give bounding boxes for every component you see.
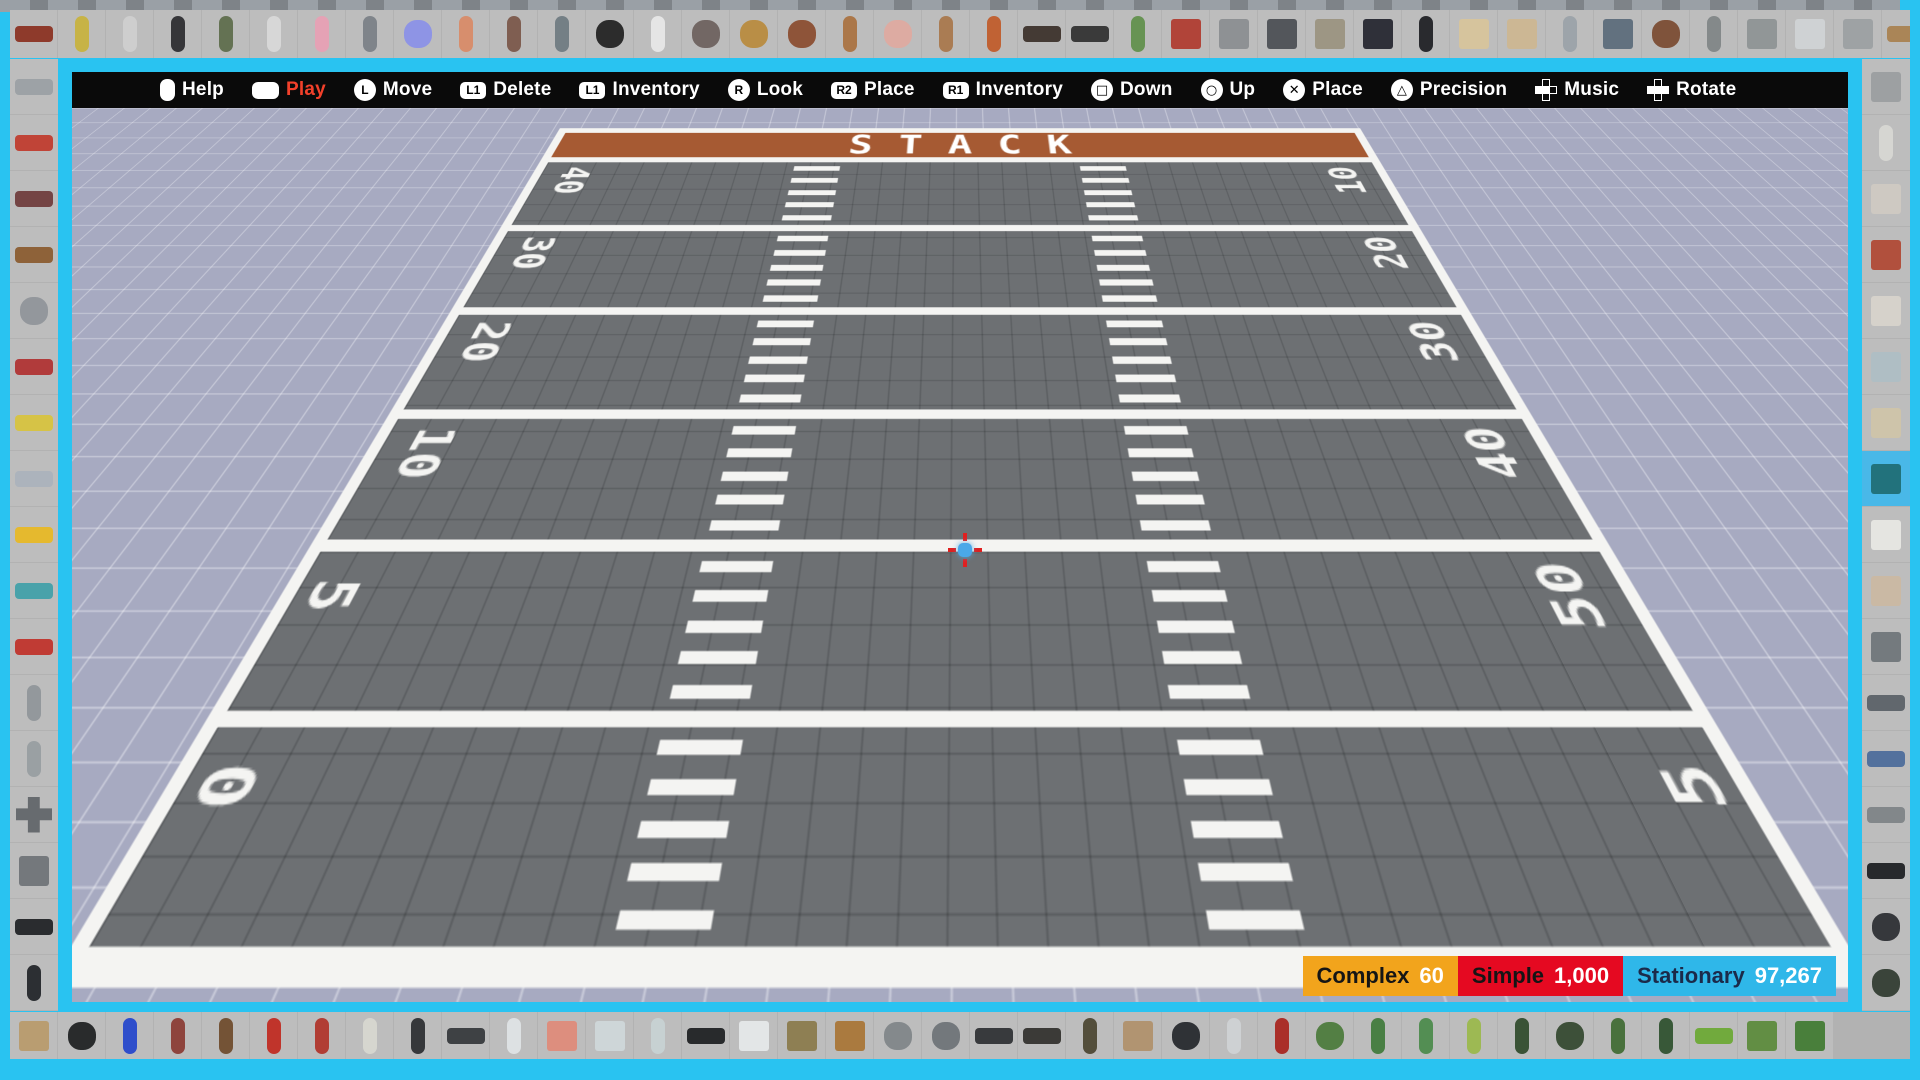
- cactus-thumb-icon: [1371, 1018, 1385, 1054]
- menu-help-0-button[interactable]: Help: [160, 79, 224, 101]
- menu-play-1-button[interactable]: Play: [252, 79, 326, 101]
- palette-item-dark-plank-b[interactable]: [1018, 1012, 1065, 1059]
- menu-music-12-button[interactable]: Music: [1535, 79, 1619, 101]
- field-section: 1040: [328, 419, 1593, 540]
- stationary-badge-value: 97,267: [1755, 963, 1822, 989]
- tan-wedge-thumb-icon: [1459, 19, 1489, 49]
- palette-item-flying-eagle[interactable]: [1018, 10, 1065, 58]
- green-tree-thumb-icon: [1131, 16, 1145, 52]
- palette-item-baby[interactable]: [442, 10, 489, 58]
- palette-item-go-kart[interactable]: [10, 619, 58, 674]
- palm-tree-thumb-icon: [1611, 1018, 1625, 1054]
- hash-dash: [685, 620, 763, 632]
- hash-marks-left: [670, 561, 774, 699]
- crystal-structure-thumb-icon: [1363, 19, 1393, 49]
- palette-item-ketchup-bottle[interactable]: [250, 1012, 297, 1059]
- palette-item-black-dress-woman[interactable]: [154, 10, 201, 58]
- hash-dash: [693, 590, 769, 602]
- rooster-thumb-icon: [987, 16, 1001, 52]
- hash-dash: [715, 495, 784, 505]
- palette-item-plank-stack-cube[interactable]: [1862, 395, 1910, 450]
- mannequin-thumb-icon: [267, 16, 281, 52]
- palette-item-white-dart[interactable]: [346, 1012, 393, 1059]
- dirt-bike-thumb-icon: [15, 359, 53, 375]
- hash-dash: [1119, 394, 1181, 402]
- palette-item-hippo[interactable]: [682, 10, 729, 58]
- hash-marks-right: [1106, 321, 1181, 403]
- palette-item-stone-gate[interactable]: [1738, 10, 1785, 58]
- palette-item-glass-cube[interactable]: [1862, 339, 1910, 394]
- palette-item-wooden-pole[interactable]: [1066, 1012, 1113, 1059]
- hash-dash: [1084, 190, 1132, 195]
- palette-item-black-fin[interactable]: [1162, 1012, 1209, 1059]
- palette-item-green-tree[interactable]: [1114, 10, 1161, 58]
- palette-item-school-bus[interactable]: [10, 507, 58, 562]
- camera-crane-thumb-icon: [447, 1028, 485, 1044]
- menu-rotate-13-button[interactable]: Rotate: [1647, 79, 1736, 101]
- palette-item-curved-wedge[interactable]: [1498, 10, 1545, 58]
- palette-item-palm-tree[interactable]: [1594, 1012, 1641, 1059]
- hash-dash: [1147, 561, 1221, 572]
- soldier-thumb-icon: [219, 16, 233, 52]
- hash-dash: [1112, 356, 1172, 363]
- dark-plank-a-thumb-icon: [975, 1028, 1013, 1044]
- yard-number-left: 10: [384, 427, 464, 479]
- palette-item-soldier[interactable]: [202, 10, 249, 58]
- menu-music-label: Music: [1564, 79, 1619, 101]
- palette-item-glass-shard[interactable]: [634, 1012, 681, 1059]
- palette-item-white-board[interactable]: [730, 1012, 777, 1059]
- palette-item-camera-crane[interactable]: [442, 1012, 489, 1059]
- field-section: 2030: [404, 315, 1517, 410]
- cobblestone-cube-thumb-icon: [1871, 296, 1901, 326]
- palette-item-anime-girl[interactable]: [298, 10, 345, 58]
- reticle-tick-north: [963, 533, 967, 541]
- palette-item-tripod[interactable]: [394, 1012, 441, 1059]
- white-board-thumb-icon: [739, 1021, 769, 1051]
- white-cube-thumb-icon: [1871, 520, 1901, 550]
- black-ramp-thumb-icon: [1419, 16, 1433, 52]
- palette-item-brick-cube[interactable]: [1862, 227, 1910, 282]
- hash-dash: [1106, 321, 1163, 328]
- palette-item-deer[interactable]: [826, 10, 873, 58]
- castle-arch-thumb-icon: [1871, 184, 1901, 214]
- hash-dash: [1094, 250, 1147, 256]
- palette-item-metal-ramp[interactable]: [1862, 619, 1910, 674]
- cow-thumb-icon: [788, 20, 816, 48]
- menu-inventory-7-button[interactable]: R1Inventory: [943, 79, 1063, 101]
- palette-item-rabbit-mascot[interactable]: [346, 10, 393, 58]
- palette-item-wooden-table[interactable]: [10, 227, 58, 282]
- palette-item-whiteboard[interactable]: [490, 1012, 537, 1059]
- palette-item-wooden-plank[interactable]: [1882, 10, 1910, 58]
- palette-item-monster-truck[interactable]: [10, 59, 58, 114]
- stone-tablet-thumb-icon: [1871, 576, 1901, 606]
- swing-set-thumb-icon: [1171, 19, 1201, 49]
- pine-tree-thumb-icon: [1659, 1018, 1673, 1054]
- stone-gate-thumb-icon: [1747, 19, 1777, 49]
- stack-banner-text: STACK: [820, 130, 1099, 159]
- wooden-pole-thumb-icon: [1083, 1018, 1097, 1054]
- palette-item-swing-set[interactable]: [1162, 10, 1209, 58]
- metal-ramp-thumb-icon: [1871, 632, 1901, 662]
- red-buggy-thumb-icon: [15, 26, 53, 42]
- hash-dash: [678, 651, 758, 664]
- palette-item-castle-arch[interactable]: [1862, 171, 1910, 226]
- yard-number-left: 5: [291, 578, 369, 612]
- palette-item-sign-post[interactable]: [1546, 10, 1593, 58]
- palette-item-wooden-barrel[interactable]: [202, 1012, 249, 1059]
- stick-L-icon: L: [354, 79, 376, 101]
- menu-place-6-button[interactable]: R2Place: [831, 79, 915, 101]
- vulture-thumb-icon: [1071, 26, 1109, 42]
- hash-marks-left: [709, 426, 796, 530]
- black-hopper-thumb-icon: [687, 1028, 725, 1044]
- menu-up-9-button[interactable]: ○Up: [1201, 79, 1256, 101]
- hash-dash: [721, 471, 789, 480]
- palette-item-brown-bird[interactable]: [1642, 10, 1689, 58]
- palette-item-dark-house[interactable]: [1258, 10, 1305, 58]
- menu-look-5-button[interactable]: RLook: [728, 79, 803, 101]
- hash-dash: [785, 202, 834, 207]
- dpad-down-segment: [1654, 93, 1662, 101]
- bench-ramp-thumb-icon: [15, 919, 53, 935]
- hash-marks-left: [763, 236, 829, 302]
- anime-girl-thumb-icon: [315, 16, 329, 52]
- grey-wall-thumb-icon: [1843, 19, 1873, 49]
- palette-item-bench-ramp[interactable]: [10, 899, 58, 954]
- palette-bottom: [10, 1012, 1910, 1059]
- palette-item-trampoline[interactable]: [1862, 955, 1910, 1010]
- blue-barrel-thumb-icon: [123, 1018, 137, 1054]
- palette-item-dark-bush[interactable]: [1546, 1012, 1593, 1059]
- street-lamp-single-thumb-icon: [27, 741, 41, 777]
- palette-item-agave-plant[interactable]: [1402, 1012, 1449, 1059]
- app-screen: HelpPlayLMoveL1DeleteL1InventoryRLookR2P…: [0, 0, 1920, 1080]
- reticle-center: [958, 543, 972, 557]
- palette-left: [10, 59, 58, 1011]
- wooden-table-thumb-icon: [15, 247, 53, 263]
- ketchup-bottle-thumb-icon: [267, 1018, 281, 1054]
- menu-place-10-button[interactable]: ✕Place: [1283, 79, 1363, 101]
- palette-item-black-dog[interactable]: [586, 10, 633, 58]
- complex-badge-label: Complex: [1317, 963, 1410, 989]
- open-box-thumb-icon: [1603, 19, 1633, 49]
- yard-number-left: 30: [502, 236, 562, 269]
- bicycle-thumb-icon: [15, 415, 53, 431]
- palette-item-lion[interactable]: [730, 10, 777, 58]
- palette-item-red-flare[interactable]: [298, 1012, 345, 1059]
- palette-item-escalator[interactable]: [1862, 675, 1910, 730]
- shoulder-L1-icon: L1: [579, 82, 605, 99]
- hash-dash: [699, 561, 773, 572]
- plank-stack-cube-thumb-icon: [1871, 408, 1901, 438]
- hash-dash: [670, 685, 753, 699]
- palette-item-race-car[interactable]: [10, 115, 58, 170]
- flatbed-truck-thumb-icon: [15, 583, 53, 599]
- palette-item-robot-woman[interactable]: [58, 10, 105, 58]
- palette-item-glass-pane[interactable]: [586, 1012, 633, 1059]
- palette-item-flower-bed[interactable]: [1738, 1012, 1785, 1059]
- palette-item-teal-cube[interactable]: [1862, 451, 1910, 506]
- menu-place-label: Place: [1312, 79, 1363, 101]
- palette-item-bamboo-fence[interactable]: [778, 1012, 825, 1059]
- white-figure-thumb-icon: [123, 16, 137, 52]
- hash-dash: [732, 426, 797, 435]
- palette-item-dirt-bike[interactable]: [10, 339, 58, 394]
- stationary-badge-label: Stationary: [1637, 963, 1745, 989]
- palette-item-grey-building[interactable]: [1210, 10, 1257, 58]
- palette-item-pig[interactable]: [874, 10, 921, 58]
- dome-car-thumb-icon: [1867, 751, 1905, 767]
- palette-item-cow[interactable]: [778, 10, 825, 58]
- palette-item-red-buggy[interactable]: [10, 10, 57, 58]
- motorcycle-thumb-icon: [15, 471, 53, 487]
- yard-number-right: 50: [1525, 562, 1621, 630]
- palette-item-white-llama[interactable]: [634, 10, 681, 58]
- hash-dash: [637, 820, 729, 837]
- menu-play-label: Play: [286, 79, 326, 101]
- hash-dash: [739, 394, 801, 402]
- black-dress-woman-thumb-icon: [171, 16, 185, 52]
- menu-bar: HelpPlayLMoveL1DeleteL1InventoryRLookR2P…: [72, 72, 1848, 108]
- palette-item-street-lamp-single[interactable]: [10, 731, 58, 786]
- palette-item-quad-bike[interactable]: [10, 283, 58, 338]
- brown-bird-thumb-icon: [1652, 20, 1680, 48]
- palette-item-blue-barrel[interactable]: [106, 1012, 153, 1059]
- palette-item-cactus[interactable]: [1354, 1012, 1401, 1059]
- dpad-icon: [1535, 79, 1557, 101]
- curved-ramp-thumb-icon: [27, 965, 41, 1001]
- deer-thumb-icon: [843, 16, 857, 52]
- white-tower-thumb-icon: [1879, 125, 1893, 161]
- palette-item-stone-tower[interactable]: [1690, 10, 1737, 58]
- menu-move-label: Move: [383, 79, 432, 101]
- hash-dash: [1115, 375, 1176, 383]
- simple-badge-label: Simple: [1472, 963, 1544, 989]
- wooden-plank-thumb-icon: [1887, 26, 1911, 42]
- palette-item-tan-wedge[interactable]: [1450, 10, 1497, 58]
- yard-number-left: 40: [545, 166, 598, 194]
- trampoline-thumb-icon: [1872, 969, 1900, 997]
- go-kart-thumb-icon: [15, 639, 53, 655]
- hash-marks-right: [1080, 166, 1138, 220]
- palette-item-muscle-monster[interactable]: [490, 10, 537, 58]
- palette-item-road-intersection[interactable]: [10, 787, 58, 842]
- palette-item-antelope[interactable]: [922, 10, 969, 58]
- muscle-monster-thumb-icon: [507, 16, 521, 52]
- yard-line: [459, 307, 1461, 315]
- glass-shard-thumb-icon: [651, 1018, 665, 1054]
- hash-marks-right: [1124, 426, 1211, 530]
- shoulder-R2-icon: R2: [831, 82, 857, 99]
- palette-item-medical-barrel[interactable]: [154, 1012, 201, 1059]
- metal-egg-thumb-icon: [884, 1022, 912, 1050]
- palette-item-curved-ramp[interactable]: [10, 955, 58, 1010]
- palette-item-motorcycle[interactable]: [10, 451, 58, 506]
- hash-dash: [647, 779, 736, 795]
- palette-item-mannequin[interactable]: [250, 10, 297, 58]
- menu-look-label: Look: [757, 79, 803, 101]
- teal-cube-thumb-icon: [1871, 464, 1901, 494]
- hash-dash: [1102, 295, 1158, 301]
- hash-dash: [770, 264, 824, 270]
- scene-3d[interactable]: STACK 401030202030104055005 Complex60Sim…: [72, 108, 1848, 1002]
- rabbit-mascot-thumb-icon: [363, 16, 377, 52]
- palette-item-poplar-sapling[interactable]: [1450, 1012, 1497, 1059]
- palette-item-grass-patch[interactable]: [1786, 1012, 1833, 1059]
- palette-item-ruin-building[interactable]: [1862, 59, 1910, 114]
- palette-item-particle-burst[interactable]: [394, 10, 441, 58]
- reticle-tick-east: [974, 548, 982, 552]
- field-section: 550: [227, 552, 1692, 711]
- palette-item-grass-strip[interactable]: [1690, 1012, 1737, 1059]
- menu-precision-11-button[interactable]: △Precision: [1391, 79, 1507, 101]
- school-bus-thumb-icon: [15, 527, 53, 543]
- palette-item-white-figure[interactable]: [106, 10, 153, 58]
- palette-item-metal-bucket[interactable]: [922, 1012, 969, 1059]
- hash-dash: [1152, 590, 1228, 602]
- palette-item-dark-plank-a[interactable]: [970, 1012, 1017, 1059]
- race-car-thumb-icon: [15, 135, 53, 151]
- hash-dash: [657, 740, 743, 755]
- palette-item-flatbed-truck[interactable]: [10, 563, 58, 618]
- palette-item-bicycle[interactable]: [10, 395, 58, 450]
- hash-dash: [773, 250, 826, 256]
- menu-down-8-button[interactable]: □Down: [1091, 79, 1173, 101]
- hash-dash: [709, 520, 780, 530]
- slat-fence-thumb-icon: [835, 1021, 865, 1051]
- palette-item-black-ramp[interactable]: [1402, 10, 1449, 58]
- palette-item-white-tower[interactable]: [1862, 115, 1910, 170]
- palette-item-slat-fence[interactable]: [826, 1012, 873, 1059]
- menu-place-label: Place: [864, 79, 915, 101]
- black-plank-thumb-icon: [1867, 863, 1905, 879]
- stone-tower-thumb-icon: [1707, 16, 1721, 52]
- palette-item-stone-house[interactable]: [1306, 10, 1353, 58]
- palette-item-flower-bush[interactable]: [1306, 1012, 1353, 1059]
- palette-item-white-cube[interactable]: [1862, 507, 1910, 562]
- hash-dash: [1097, 264, 1151, 270]
- palette-item-cobblestone-cube[interactable]: [1862, 283, 1910, 338]
- dpad-icon: [1647, 79, 1669, 101]
- hash-dash: [766, 280, 821, 286]
- palette-item-cypress-tree[interactable]: [1498, 1012, 1545, 1059]
- dark-house-thumb-icon: [1267, 19, 1297, 49]
- palette-item-wrecking-ball[interactable]: [1862, 899, 1910, 954]
- pad-h-icon: [252, 82, 279, 99]
- hash-dash: [1088, 215, 1138, 220]
- palette-item-road-straight[interactable]: [10, 843, 58, 898]
- palette-item-vulture[interactable]: [1066, 10, 1113, 58]
- menu-inventory-4-button[interactable]: L1Inventory: [579, 79, 699, 101]
- palette-item-red-door[interactable]: [1258, 1012, 1305, 1059]
- yard-line: [218, 711, 1703, 727]
- cursor-reticle: [948, 533, 982, 567]
- hash-dash: [616, 910, 714, 929]
- hash-marks-right: [1147, 561, 1251, 699]
- dpad-right-segment: [1661, 86, 1669, 94]
- palette-item-dome-car[interactable]: [1862, 731, 1910, 786]
- palette-item-stone-tablet[interactable]: [1862, 563, 1910, 618]
- menu-delete-label: Delete: [493, 79, 551, 101]
- white-wall-thumb-icon: [1795, 19, 1825, 49]
- reticle-tick-west: [948, 548, 956, 552]
- hash-dash: [748, 356, 808, 363]
- anvil-stump-thumb-icon: [1123, 1021, 1153, 1051]
- palette-item-pine-tree[interactable]: [1642, 1012, 1689, 1059]
- zombie-thumb-icon: [555, 16, 569, 52]
- complex-badge: Complex60: [1303, 956, 1458, 996]
- palette-item-wooden-crate[interactable]: [10, 1012, 57, 1059]
- palette-item-grey-plank[interactable]: [1862, 787, 1910, 842]
- palette-item-grey-wall[interactable]: [1834, 10, 1881, 58]
- menu-delete-3-button[interactable]: L1Delete: [460, 79, 551, 101]
- road-intersection-thumb-icon: [16, 797, 52, 833]
- palette-item-pink-panel[interactable]: [538, 1012, 585, 1059]
- grey-plank-thumb-icon: [1867, 807, 1905, 823]
- escalator-thumb-icon: [1867, 695, 1905, 711]
- grass-strip-thumb-icon: [1695, 1028, 1733, 1044]
- glass-pane-thumb-icon: [595, 1021, 625, 1051]
- palette-item-rooster[interactable]: [970, 10, 1017, 58]
- palette-item-open-box[interactable]: [1594, 10, 1641, 58]
- pig-thumb-icon: [884, 20, 912, 48]
- field-section: 05: [89, 727, 1830, 946]
- palette-item-metal-egg[interactable]: [874, 1012, 921, 1059]
- palette-item-zombie[interactable]: [538, 10, 585, 58]
- ruin-building-thumb-icon: [1871, 72, 1901, 102]
- shoulder-L1-icon: L1: [460, 82, 486, 99]
- wind-turbine-thumb-icon: [1227, 1018, 1241, 1054]
- hash-dash: [757, 321, 814, 328]
- black-dog-thumb-icon: [596, 20, 624, 48]
- menu-up-label: Up: [1230, 79, 1256, 101]
- menu-move-2-button[interactable]: LMove: [354, 79, 432, 101]
- hash-dash: [753, 338, 812, 345]
- palette-item-street-lamp-double[interactable]: [10, 675, 58, 730]
- palette-item-anvil-stump[interactable]: [1114, 1012, 1161, 1059]
- simple-badge-value: 1,000: [1554, 963, 1609, 989]
- menu-precision-label: Precision: [1420, 79, 1507, 101]
- dark-plank-b-thumb-icon: [1023, 1028, 1061, 1044]
- hash-dash: [1206, 910, 1304, 929]
- menu-down-label: Down: [1120, 79, 1173, 101]
- pad-v-icon: [160, 79, 175, 101]
- palette-item-tire[interactable]: [58, 1012, 105, 1059]
- face-✕-icon: ✕: [1283, 79, 1305, 101]
- flower-bush-thumb-icon: [1316, 1022, 1344, 1050]
- palette-item-black-hopper[interactable]: [682, 1012, 729, 1059]
- palette-item-black-plank[interactable]: [1862, 843, 1910, 898]
- hash-dash: [1157, 620, 1235, 632]
- palette-item-crystal-structure[interactable]: [1354, 10, 1401, 58]
- monster-truck-thumb-icon: [15, 79, 53, 95]
- palette-item-helicopter[interactable]: [10, 171, 58, 226]
- palette-item-white-wall[interactable]: [1786, 10, 1833, 58]
- red-flare-thumb-icon: [315, 1018, 329, 1054]
- hash-dash: [726, 448, 792, 457]
- palette-item-wind-turbine[interactable]: [1210, 1012, 1257, 1059]
- yard-number-right: 10: [1322, 166, 1375, 194]
- helicopter-thumb-icon: [15, 191, 53, 207]
- field-section: 3020: [463, 231, 1456, 307]
- hash-dash: [1191, 820, 1283, 837]
- simple-badge: Simple1,000: [1458, 956, 1623, 996]
- hash-dash: [1177, 740, 1263, 755]
- hash-dash: [791, 178, 839, 183]
- hash-dash: [763, 295, 819, 301]
